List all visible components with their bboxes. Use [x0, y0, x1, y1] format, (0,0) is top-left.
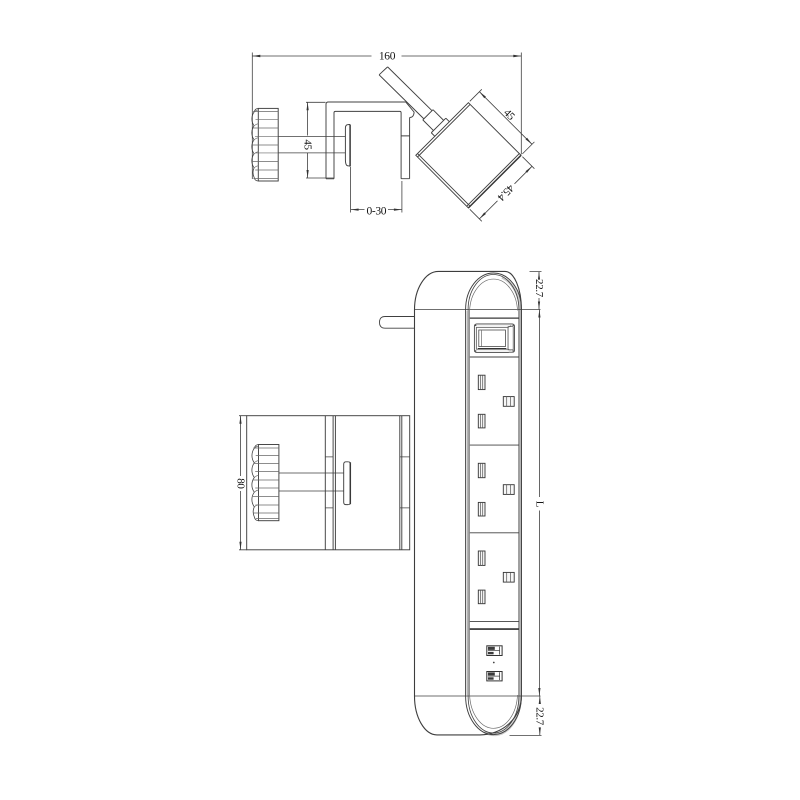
svg-text:22.7: 22.7 [534, 707, 546, 726]
svg-text:160: 160 [379, 51, 396, 63]
svg-text:80: 80 [234, 478, 246, 489]
svg-text:45: 45 [301, 139, 313, 150]
svg-text:0-30: 0-30 [366, 205, 386, 217]
svg-text:22.7: 22.7 [533, 279, 545, 298]
svg-text:L: L [533, 501, 545, 508]
